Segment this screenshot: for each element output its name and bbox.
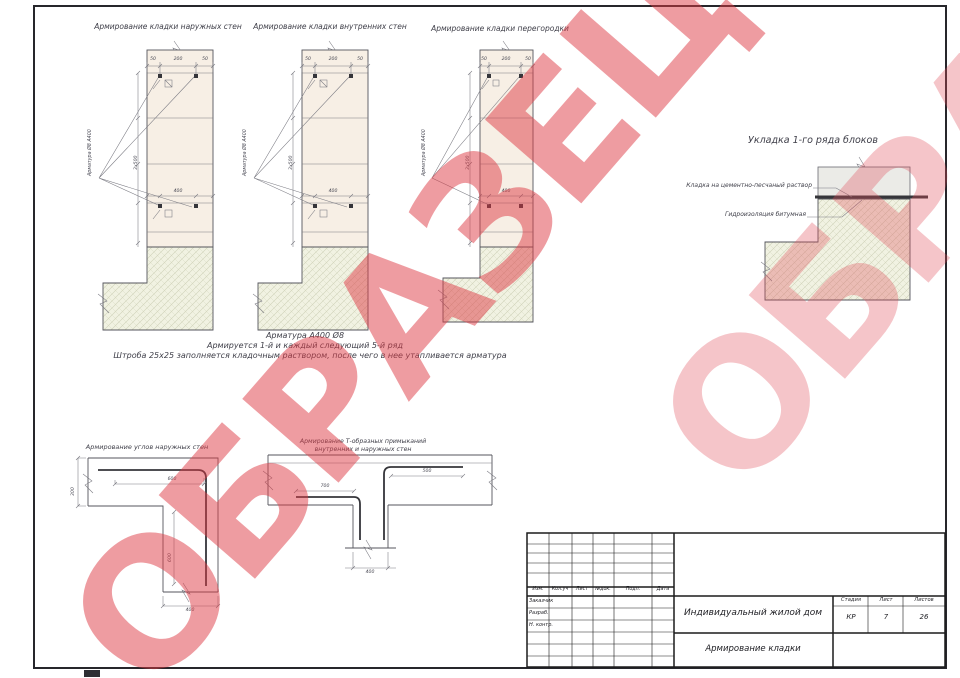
note-rebar: Арматура А400 Ø8 bbox=[266, 331, 344, 340]
tb-row-normcontrol: Н. контр. bbox=[529, 623, 553, 628]
dim-c-top-mid: 200 bbox=[502, 57, 511, 62]
rebar-callout-a: Арматура Ø8 А400 bbox=[88, 129, 93, 176]
mortar-label: Кладка на цементно-песчаный раствор bbox=[686, 183, 812, 190]
laying-detail-title: Укладка 1-го ряда блоков bbox=[748, 136, 878, 147]
dim-c-mid: 400 bbox=[502, 189, 511, 194]
dim-a-mid: 400 bbox=[174, 189, 183, 194]
tb-col-koluch: Кол.уч bbox=[552, 588, 569, 593]
sheets-value: 26 bbox=[920, 614, 929, 621]
corner-dim-side: 600 bbox=[168, 553, 173, 562]
corner-dim-bottom: 400 bbox=[186, 608, 195, 613]
drawing-linework bbox=[0, 0, 960, 678]
dim-c-height: 3x500 bbox=[466, 156, 471, 170]
tee-junction-detail bbox=[263, 455, 497, 570]
project-name: Индивидуальный жилой дом bbox=[684, 609, 822, 618]
dim-b-height: 3x500 bbox=[289, 156, 294, 170]
sheet-value: 7 bbox=[884, 614, 888, 621]
scan-artifact bbox=[84, 670, 100, 677]
dim-a-top-right: 50 bbox=[202, 57, 208, 62]
tee-dim-bottom: 400 bbox=[366, 570, 375, 575]
dim-b-top-left: 50 bbox=[305, 57, 311, 62]
tb-row-customer: Заказчик bbox=[529, 599, 553, 604]
tee-dim-right: 500 bbox=[423, 469, 432, 474]
note-groove: Штроба 25x25 заполняется кладочным раств… bbox=[113, 351, 506, 360]
waterproofing-label: Гидроизоляция битумная bbox=[725, 212, 806, 219]
tb-col-data: Дата bbox=[657, 588, 669, 593]
dim-b-top-mid: 200 bbox=[329, 57, 338, 62]
stage-value: КР bbox=[846, 614, 855, 621]
tb-col-podp: Подп. bbox=[626, 588, 641, 593]
drawing-title: Армирование кладки bbox=[705, 645, 800, 654]
corner-detail-title: Армирование углов наружных стен bbox=[86, 444, 208, 451]
tb-col-dok: №док. bbox=[595, 588, 611, 593]
corner-dim-top: 600 bbox=[168, 477, 177, 482]
first-row-laying-detail bbox=[761, 157, 928, 300]
wall-section-partition bbox=[432, 41, 535, 322]
tb-col-izm: Изм. bbox=[532, 588, 543, 593]
sheet-label: Лист bbox=[879, 598, 892, 603]
sheets-label: Листов bbox=[914, 598, 933, 603]
tb-row-developer: Разраб. bbox=[529, 611, 549, 616]
tee-dim-left: 700 bbox=[321, 484, 330, 489]
section-title-partition: Армирование кладки перегородки bbox=[431, 25, 569, 34]
rebar-callout-c: Арматура Ø8 А400 bbox=[422, 129, 427, 176]
section-title-external: Армирование кладки наружных стен bbox=[94, 23, 242, 32]
wall-section-internal bbox=[253, 41, 370, 330]
tee-detail-title-1: Армирование Т-образных примыканий bbox=[300, 438, 426, 445]
corner-dim-left: 300 bbox=[71, 487, 76, 496]
rebar-callout-b: Арматура Ø8 А400 bbox=[243, 129, 248, 176]
dim-a-height: 3x500 bbox=[134, 156, 139, 170]
wall-section-external bbox=[98, 41, 215, 330]
dim-c-top-left: 50 bbox=[481, 57, 487, 62]
tb-col-list: Лист bbox=[576, 588, 588, 593]
dim-b-top-right: 50 bbox=[357, 57, 363, 62]
drawing-sheet: Армирование кладки наружных стен Армиров… bbox=[0, 0, 960, 678]
dim-c-top-right: 50 bbox=[525, 57, 531, 62]
tee-detail-title-2: внутренних и наружных стен bbox=[315, 446, 412, 453]
dim-a-top-mid: 200 bbox=[174, 57, 183, 62]
dim-b-mid: 400 bbox=[329, 189, 338, 194]
note-rows: Армируется 1-й и каждый следующий 5-й ря… bbox=[207, 341, 403, 350]
section-title-internal: Армирование кладки внутренних стен bbox=[253, 23, 406, 32]
stage-label: Стадия bbox=[841, 598, 861, 603]
corner-reinforcement-detail bbox=[76, 456, 220, 608]
dim-a-top-left: 50 bbox=[150, 57, 156, 62]
